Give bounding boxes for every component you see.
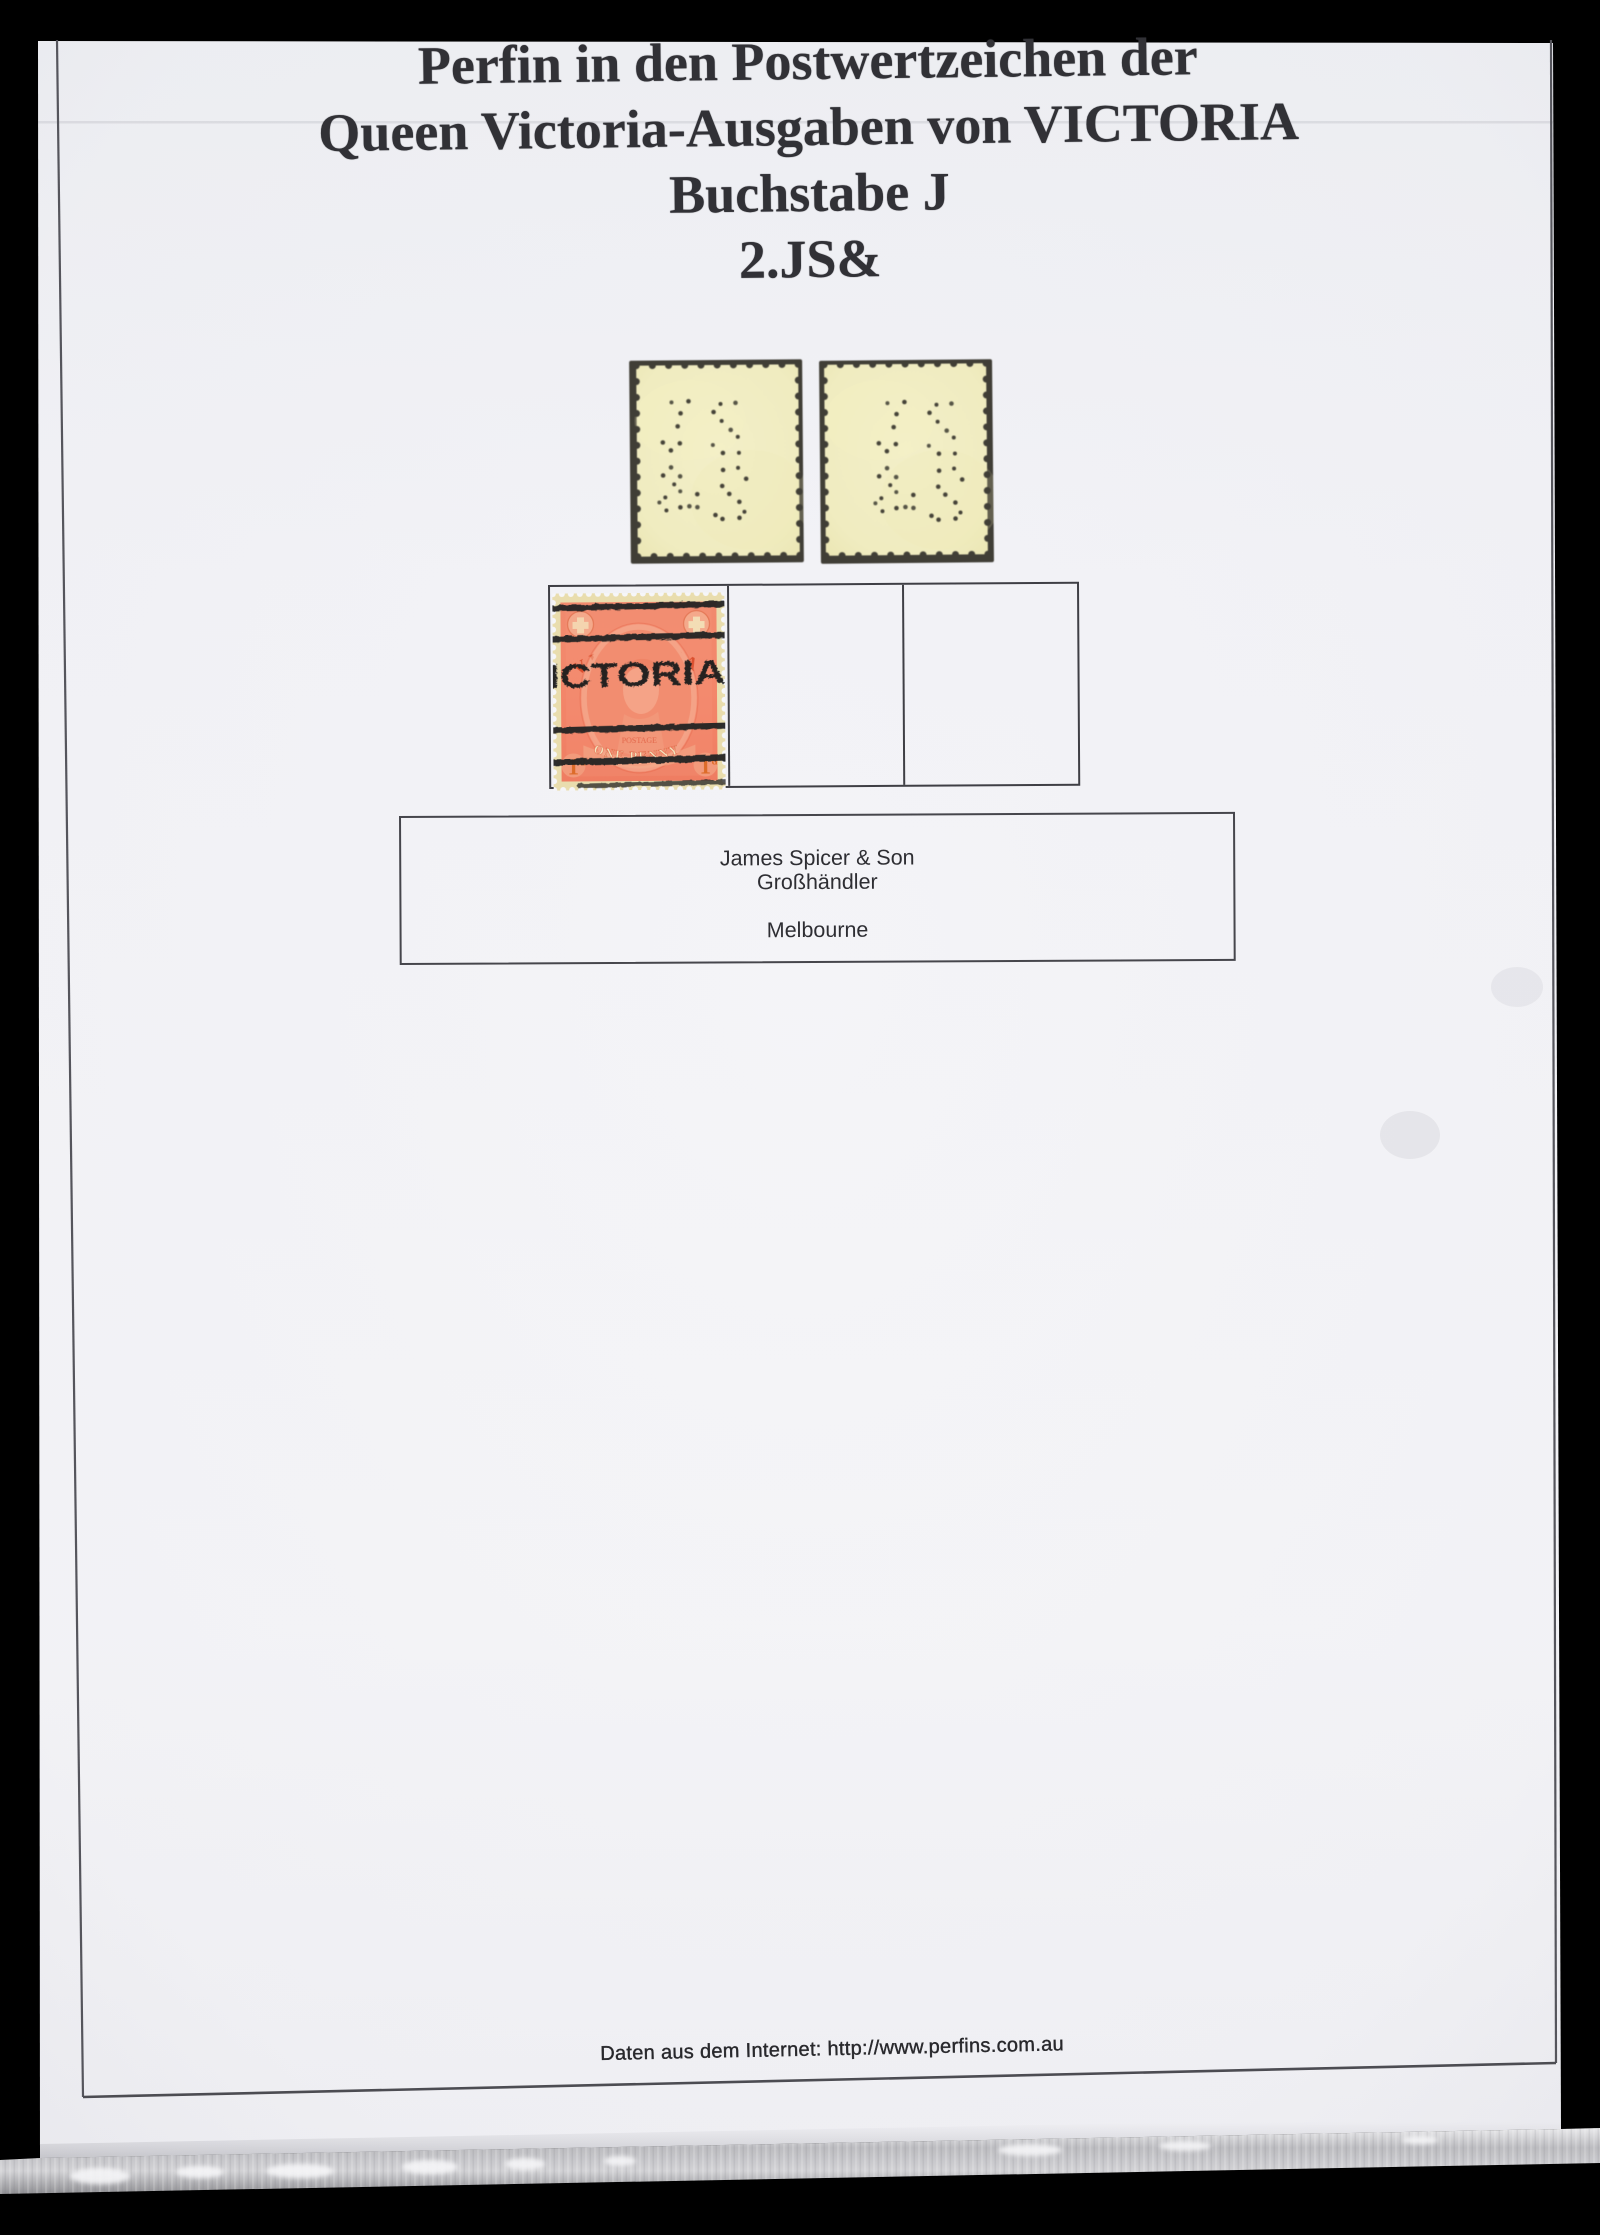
svg-text:1: 1 [567, 754, 579, 779]
svg-text:POSTAGE: POSTAGE [622, 736, 658, 745]
svg-text:ICTORIA: ICTORIA [552, 654, 725, 696]
